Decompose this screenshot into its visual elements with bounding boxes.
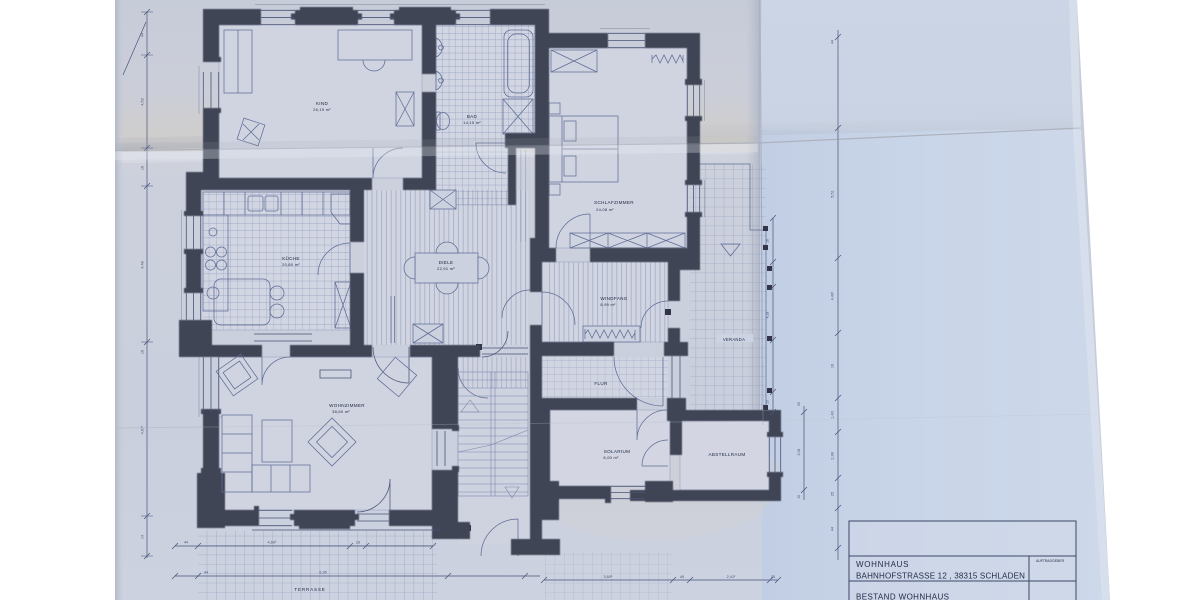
svg-text:14: 14: [141, 535, 145, 539]
svg-text:44: 44: [204, 571, 208, 575]
svg-text:1,40: 1,40: [831, 411, 835, 418]
svg-text:BAD: BAD: [467, 114, 478, 119]
svg-text:14,15 m²: 14,15 m²: [463, 120, 481, 125]
svg-text:FLUR: FLUR: [594, 381, 608, 386]
svg-text:44: 44: [831, 40, 835, 44]
svg-text:44: 44: [831, 527, 835, 531]
svg-text:16: 16: [766, 239, 770, 243]
svg-text:4,40²: 4,40²: [831, 291, 835, 300]
svg-text:49: 49: [680, 575, 684, 579]
svg-text:15: 15: [797, 495, 801, 499]
svg-text:2,08: 2,08: [797, 449, 801, 456]
svg-text:16: 16: [141, 166, 145, 170]
svg-text:16: 16: [356, 541, 360, 545]
svg-text:4,53: 4,53: [141, 98, 145, 105]
svg-text:25: 25: [766, 400, 770, 404]
svg-text:4,67²: 4,67²: [141, 425, 145, 434]
svg-text:16: 16: [831, 364, 835, 368]
svg-text:SCHLAFZIMMER: SCHLAFZIMMER: [594, 200, 634, 205]
svg-text:3,60⁵: 3,60⁵: [604, 575, 613, 579]
svg-text:25: 25: [771, 575, 775, 579]
svg-text:44: 44: [141, 33, 145, 37]
svg-text:4,18: 4,18: [766, 312, 770, 319]
svg-text:22,91 m²: 22,91 m²: [437, 266, 455, 271]
svg-text:BESTAND WOHNHAUS: BESTAND WOHNHAUS: [856, 593, 949, 600]
svg-text:6,36: 6,36: [319, 571, 326, 575]
svg-text:2,38: 2,38: [831, 452, 835, 459]
svg-text:KIND: KIND: [316, 101, 329, 106]
svg-text:BAHNHOFSTRASSE 12 , 38315 SCHL: BAHNHOFSTRASSE 12 , 38315 SCHLADEN: [856, 572, 1025, 581]
svg-text:KÜCHE: KÜCHE: [282, 255, 300, 261]
svg-text:WOHNHAUS: WOHNHAUS: [856, 560, 909, 569]
svg-text:25: 25: [831, 492, 835, 496]
svg-text:8,99 m²: 8,99 m²: [600, 302, 616, 307]
svg-text:24,08 m²: 24,08 m²: [596, 207, 614, 212]
svg-text:16: 16: [141, 350, 145, 354]
svg-text:2,41²: 2,41²: [727, 575, 736, 579]
svg-text:4,69⁵: 4,69⁵: [268, 541, 277, 545]
svg-text:26,19 m²: 26,19 m²: [313, 107, 331, 112]
svg-text:AUFTRAGGEBER: AUFTRAGGEBER: [1036, 559, 1065, 563]
svg-text:SOLARIUM: SOLARIUM: [604, 449, 630, 454]
svg-text:TERRASSE: TERRASSE: [294, 587, 325, 592]
svg-text:VERANDA: VERANDA: [723, 337, 745, 342]
svg-text:44: 44: [184, 541, 188, 545]
svg-text:ABSTELLRAUM: ABSTELLRAUM: [709, 452, 746, 457]
svg-text:25: 25: [797, 402, 801, 406]
svg-text:38,60 m²: 38,60 m²: [332, 409, 350, 414]
svg-text:5,51: 5,51: [831, 190, 835, 197]
svg-text:20,80 m²: 20,80 m²: [282, 262, 300, 267]
svg-text:DIELE: DIELE: [439, 260, 454, 265]
svg-text:4,48: 4,48: [141, 261, 145, 268]
svg-text:WINDFANG: WINDFANG: [600, 296, 627, 301]
svg-text:WOHNZIMMER: WOHNZIMMER: [329, 403, 365, 408]
svg-text:8,00 m²: 8,00 m²: [603, 455, 619, 460]
